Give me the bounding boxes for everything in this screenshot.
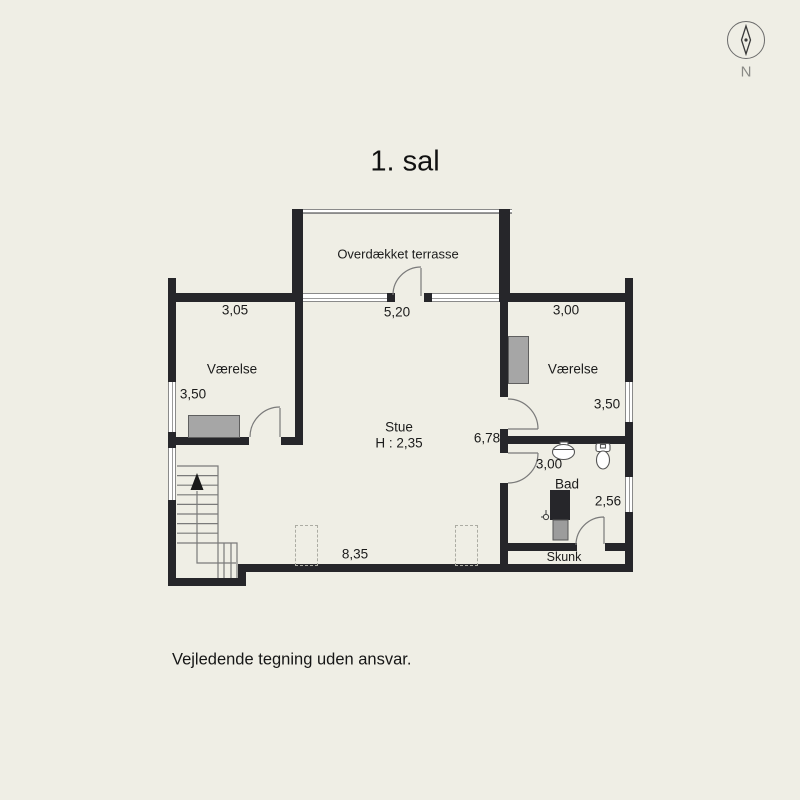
window-left-stue: [168, 448, 176, 500]
wall-bay-bottom: [168, 578, 246, 586]
terrace-railing: [292, 209, 512, 214]
dim-top-left: 3,05: [222, 303, 248, 318]
window-terrace-right: [432, 293, 499, 302]
dim-terrace-door: 5,20: [384, 305, 410, 320]
dim-stue-length: 8,35: [342, 547, 368, 562]
wall-right-room-bottom: [500, 436, 633, 444]
wall-skunk-top-b: [605, 543, 633, 551]
wall-divider-left-room: [295, 302, 303, 443]
label-vaerelse-left: Værelse: [207, 362, 257, 377]
compass-needle-icon: [0, 0, 800, 110]
label-skunk: Skunk: [547, 550, 582, 564]
label-terrace: Overdækket terrasse: [337, 247, 458, 262]
dim-top-right: 3,00: [553, 303, 579, 318]
door-bad: [508, 453, 538, 483]
window-left-vaerelse: [168, 382, 176, 432]
toilet-bowl-icon: [597, 451, 610, 469]
toilet-tank-icon: [596, 444, 610, 452]
shower-tray: [553, 520, 568, 540]
wall-divider-right-top: [500, 302, 508, 397]
wall-left-room-bottom-a: [168, 437, 249, 445]
wall-right-outer: [625, 278, 633, 572]
label-stue: Stue: [385, 420, 413, 435]
wall-top-right: [510, 293, 633, 302]
disclaimer-text: Vejledende tegning uden ansvar.: [172, 651, 411, 670]
dim-left-window: 3,50: [180, 387, 206, 402]
wall-divider-right-bottom: [500, 483, 508, 572]
window-terrace-left: [303, 293, 387, 302]
dim-stue-width: 6,78: [474, 431, 500, 446]
floor-plan-page: 1. sal N: [0, 0, 800, 800]
bed-left-vaerelse: [188, 415, 240, 438]
dim-bad-window: 2,56: [595, 494, 621, 509]
wall-top-left: [168, 293, 303, 302]
bed-right-vaerelse: [508, 336, 529, 384]
window-bad: [625, 477, 633, 512]
dim-bad-door: 3,00: [536, 457, 562, 472]
plan-linework: [0, 0, 800, 800]
door-left-vaerelse: [250, 407, 280, 437]
skylight-left: [295, 525, 318, 566]
shower-head-icon: [543, 514, 548, 519]
stairs-treads: [177, 476, 218, 543]
dim-right-window: 3,50: [594, 397, 620, 412]
label-vaerelse-right: Værelse: [548, 362, 598, 377]
stairs-up-arrow: [191, 473, 204, 490]
door-right-vaerelse: [508, 399, 538, 429]
wall-left-room-bottom-b: [281, 437, 303, 445]
compass-icon: [727, 21, 765, 59]
stairs-outline: [177, 466, 237, 578]
page-title: 1. sal: [370, 146, 439, 179]
skylight-right: [455, 525, 478, 566]
terrace-door-jamb-left: [387, 293, 395, 302]
shower-wall: [550, 490, 570, 520]
terrace-post-right: [499, 209, 510, 302]
compass-north-label: N: [741, 64, 752, 81]
terrace-post-left: [292, 209, 303, 302]
label-stue-height: H : 2,35: [375, 436, 422, 451]
wall-left-outer: [168, 278, 176, 586]
label-bad: Bad: [555, 477, 579, 492]
window-right-vaerelse: [625, 382, 633, 422]
stairs-walkline: [197, 491, 236, 563]
terrace-door-jamb-right: [424, 293, 432, 302]
door-terrace: [393, 267, 421, 296]
door-skunk: [576, 517, 604, 545]
